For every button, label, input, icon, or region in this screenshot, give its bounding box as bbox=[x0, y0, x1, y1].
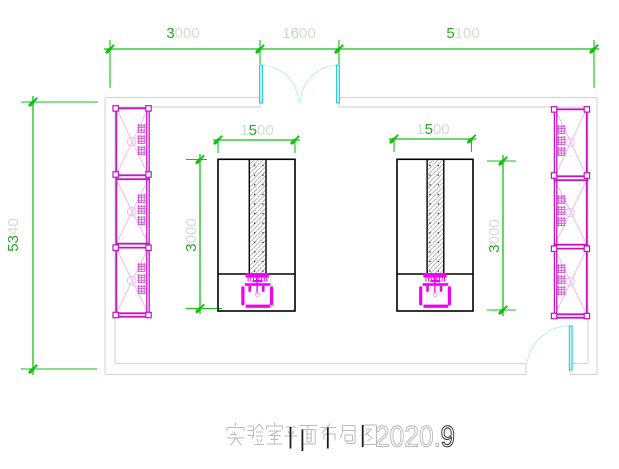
svg-text:5100: 5100 bbox=[446, 25, 479, 42]
svg-text:5340: 5340 bbox=[5, 218, 22, 251]
svg-text:2020.: 2020. bbox=[375, 421, 441, 454]
svg-text:3000: 3000 bbox=[486, 219, 503, 252]
svg-text:1500: 1500 bbox=[240, 122, 273, 139]
svg-text:3000: 3000 bbox=[183, 218, 200, 251]
svg-text:9: 9 bbox=[441, 421, 456, 454]
svg-text:3000: 3000 bbox=[166, 25, 199, 42]
svg-text:1500: 1500 bbox=[416, 121, 449, 138]
svg-text:1600: 1600 bbox=[282, 25, 315, 42]
